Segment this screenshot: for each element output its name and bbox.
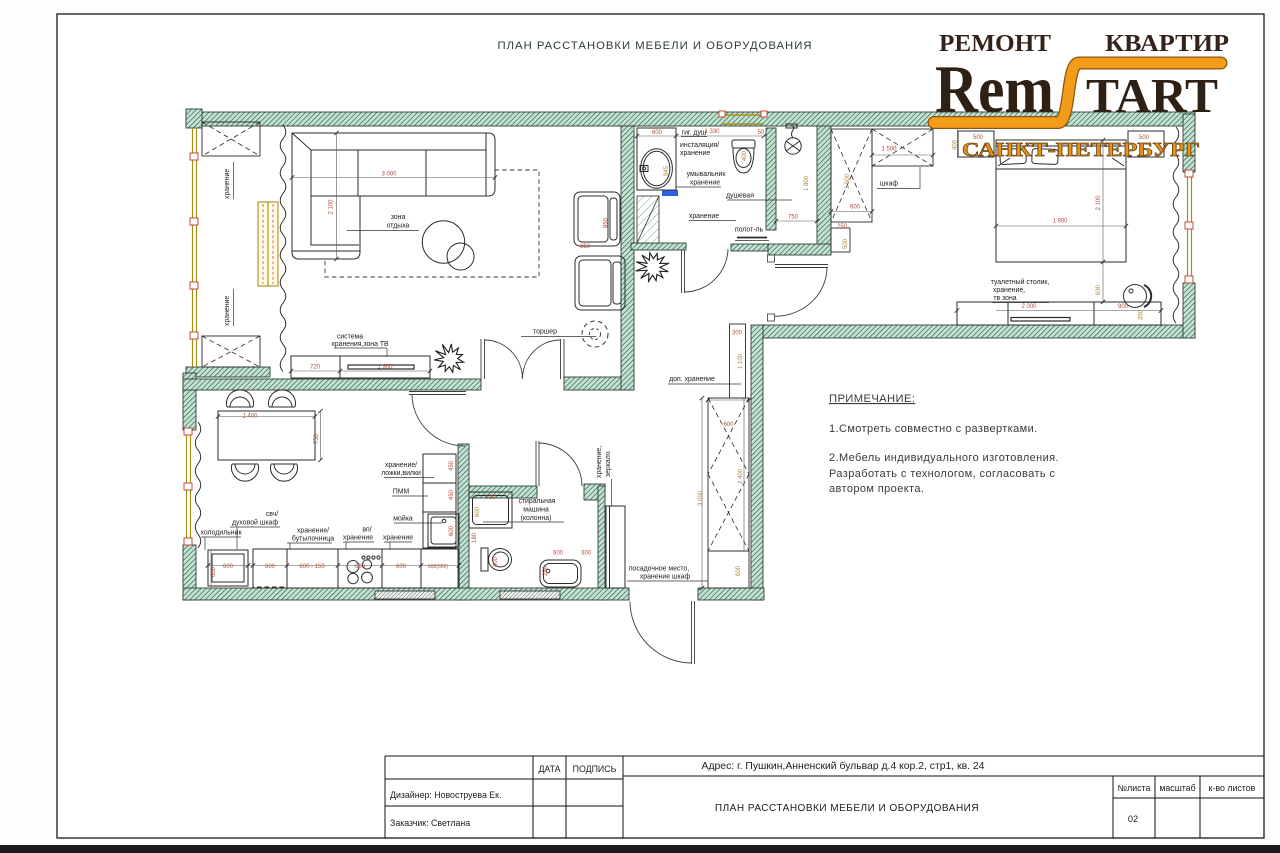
svg-text:свч/: свч/ bbox=[266, 511, 278, 518]
svg-text:850: 850 bbox=[604, 217, 610, 228]
svg-text:750: 750 bbox=[788, 215, 799, 221]
svg-text:вп/: вп/ bbox=[362, 527, 371, 534]
svg-text:Адрес: г. Пушкин,Анненский бул: Адрес: г. Пушкин,Анненский бульвар д.4 к… bbox=[702, 760, 985, 772]
svg-text:400: 400 bbox=[742, 150, 748, 161]
svg-text:хранение/: хранение/ bbox=[297, 528, 329, 535]
svg-text:хранение: хранение bbox=[383, 535, 413, 542]
svg-text:№листа: №листа bbox=[1118, 783, 1151, 793]
svg-text:ложки,вилки: ложки,вилки bbox=[381, 470, 421, 477]
svg-text:350: 350 bbox=[1139, 309, 1145, 320]
svg-text:умывальник: умывальник bbox=[687, 171, 727, 178]
svg-text:Разработать с технологом, согл: Разработать с технологом, согласовать с bbox=[829, 468, 1055, 480]
svg-text:ПРИМЕЧАНИЕ:: ПРИМЕЧАНИЕ: bbox=[829, 393, 915, 405]
svg-text:1 800: 1 800 bbox=[804, 175, 810, 191]
svg-text:945: 945 bbox=[664, 165, 670, 176]
svg-text:600: 600 bbox=[553, 551, 564, 557]
svg-text:900: 900 bbox=[1118, 304, 1129, 310]
svg-text:отдыха: отдыха bbox=[387, 223, 410, 230]
svg-text:600: 600 bbox=[211, 566, 217, 577]
svg-text:доп. хранение: доп. хранение bbox=[669, 376, 715, 383]
svg-text:хранение шкаф: хранение шкаф bbox=[640, 574, 691, 581]
svg-text:2 000: 2 000 bbox=[1021, 304, 1037, 310]
svg-text:ПЛАН РАССТАНОВКИ МЕБЕЛИ И ОБОР: ПЛАН РАССТАНОВКИ МЕБЕЛИ И ОБОРУДОВАНИЯ bbox=[498, 40, 813, 52]
svg-text:ПЛАН РАССТАНОВКИ МЕБЕЛИ И ОБОР: ПЛАН РАССТАНОВКИ МЕБЕЛИ И ОБОРУДОВАНИЯ bbox=[715, 803, 979, 814]
svg-text:400: 400 bbox=[953, 139, 959, 150]
svg-text:1 500: 1 500 bbox=[881, 147, 897, 153]
svg-text:600: 600 bbox=[475, 506, 481, 517]
svg-text:тв зона: тв зона bbox=[993, 295, 1016, 302]
svg-text:душевая: душевая bbox=[726, 193, 754, 200]
svg-text:КВАРТИР: КВАРТИР bbox=[1105, 31, 1229, 57]
svg-text:инсталяция/: инсталяция/ bbox=[680, 142, 719, 149]
svg-text:к-во листов: к-во листов bbox=[1209, 783, 1256, 793]
svg-text:600(550): 600(550) bbox=[428, 564, 448, 570]
svg-text:хранение,: хранение, bbox=[993, 287, 1025, 294]
svg-text:630: 630 bbox=[1096, 284, 1102, 295]
svg-text:хранение: хранение bbox=[224, 169, 231, 199]
svg-text:полот-ль: полот-ль bbox=[735, 227, 764, 234]
svg-text:600: 600 bbox=[265, 564, 276, 570]
svg-text:600: 600 bbox=[850, 205, 861, 211]
svg-text:2 100: 2 100 bbox=[1096, 195, 1102, 211]
svg-text:600 - 150: 600 - 150 bbox=[299, 564, 325, 570]
svg-text:хранения,зона ТВ: хранения,зона ТВ bbox=[331, 341, 389, 348]
svg-text:масштаб: масштаб bbox=[1159, 783, 1195, 793]
svg-text:система: система bbox=[337, 334, 363, 341]
svg-text:стиральная: стиральная bbox=[518, 498, 555, 505]
svg-text:посадочное место,: посадочное место, bbox=[629, 566, 689, 573]
svg-text:зеркало: зеркало bbox=[605, 451, 612, 477]
svg-text:гиг. душ: гиг. душ bbox=[682, 130, 707, 137]
svg-text:2 100: 2 100 bbox=[329, 199, 335, 215]
svg-text:хранение: хранение bbox=[224, 296, 231, 326]
svg-text:ПОДПИСЬ: ПОДПИСЬ bbox=[573, 764, 617, 774]
svg-text:1 300: 1 300 bbox=[377, 365, 393, 371]
svg-text:600: 600 bbox=[723, 422, 734, 428]
svg-text:600: 600 bbox=[652, 130, 663, 136]
svg-text:(колонна): (колонна) bbox=[521, 515, 552, 522]
svg-text:1 100: 1 100 bbox=[738, 353, 744, 369]
svg-text:САНКТ-ПЕТЕРБУРГ: САНКТ-ПЕТЕРБУРГ bbox=[962, 140, 1200, 161]
svg-text:мойка: мойка bbox=[393, 515, 413, 523]
svg-text:зона: зона bbox=[391, 214, 406, 221]
svg-text:хранение: хранение bbox=[680, 150, 710, 157]
svg-text:хранение: хранение bbox=[343, 535, 373, 542]
svg-text:Заказчик: Светлана: Заказчик: Светлана bbox=[390, 818, 470, 828]
svg-text:50: 50 bbox=[758, 130, 765, 136]
svg-text:300: 300 bbox=[732, 331, 743, 337]
svg-text:1.Смотреть совместно с разверт: 1.Смотреть совместно с развертками. bbox=[829, 423, 1038, 435]
svg-text:600: 600 bbox=[736, 565, 742, 576]
svg-text:автором проекта.: автором проекта. bbox=[829, 483, 924, 495]
svg-text:TART: TART bbox=[1086, 68, 1218, 123]
svg-text:2 400: 2 400 bbox=[738, 468, 744, 484]
svg-text:холодильник: холодильник bbox=[201, 530, 243, 537]
svg-text:шкаф: шкаф bbox=[880, 181, 899, 188]
svg-text:3 000: 3 000 bbox=[698, 490, 704, 506]
svg-text:720: 720 bbox=[310, 365, 321, 371]
svg-text:300: 300 bbox=[581, 551, 592, 557]
svg-text:бутылочница: бутылочница bbox=[292, 535, 334, 543]
svg-text:1 400: 1 400 bbox=[242, 414, 258, 420]
svg-text:торшер: торшер bbox=[533, 329, 557, 336]
svg-text:ПММ: ПММ bbox=[393, 489, 410, 496]
svg-text:Дизайнер: Новоструева Ек.: Дизайнер: Новоструева Ек. bbox=[390, 790, 501, 800]
svg-text:3 000: 3 000 bbox=[381, 172, 397, 178]
svg-text:600: 600 bbox=[396, 564, 407, 570]
svg-text:Rem: Rem bbox=[935, 51, 1054, 127]
svg-text:духовой шкаф: духовой шкаф bbox=[232, 519, 278, 527]
svg-text:хранение,: хранение, bbox=[596, 446, 603, 478]
svg-text:машина: машина bbox=[523, 507, 549, 514]
svg-text:450: 450 bbox=[449, 460, 455, 471]
svg-text:600: 600 bbox=[485, 495, 496, 501]
svg-text:ДАТА: ДАТА bbox=[538, 764, 560, 774]
svg-text:2.Мебель индивидуального изгот: 2.Мебель индивидуального изготовления. bbox=[829, 452, 1059, 464]
svg-text:650: 650 bbox=[580, 244, 591, 250]
svg-text:450: 450 bbox=[449, 489, 455, 500]
svg-text:400: 400 bbox=[493, 556, 499, 567]
svg-text:хранение/: хранение/ bbox=[385, 462, 417, 469]
svg-text:туалетный столик,: туалетный столик, bbox=[991, 278, 1050, 286]
svg-text:600: 600 bbox=[449, 525, 455, 536]
svg-text:1 330: 1 330 bbox=[704, 129, 720, 135]
svg-text:250: 250 bbox=[837, 224, 848, 230]
svg-text:500: 500 bbox=[843, 238, 849, 249]
svg-text:хранение: хранение bbox=[689, 213, 719, 220]
svg-text:600: 600 bbox=[355, 564, 366, 570]
svg-text:02: 02 bbox=[1128, 814, 1138, 824]
svg-text:180: 180 bbox=[472, 532, 478, 543]
svg-text:600: 600 bbox=[223, 564, 234, 570]
svg-text:1 900: 1 900 bbox=[1052, 219, 1068, 225]
svg-text:250: 250 bbox=[543, 565, 549, 576]
svg-text:750: 750 bbox=[314, 433, 320, 444]
svg-text:1 500: 1 500 bbox=[845, 173, 851, 189]
svg-text:хранение: хранение bbox=[690, 180, 720, 187]
